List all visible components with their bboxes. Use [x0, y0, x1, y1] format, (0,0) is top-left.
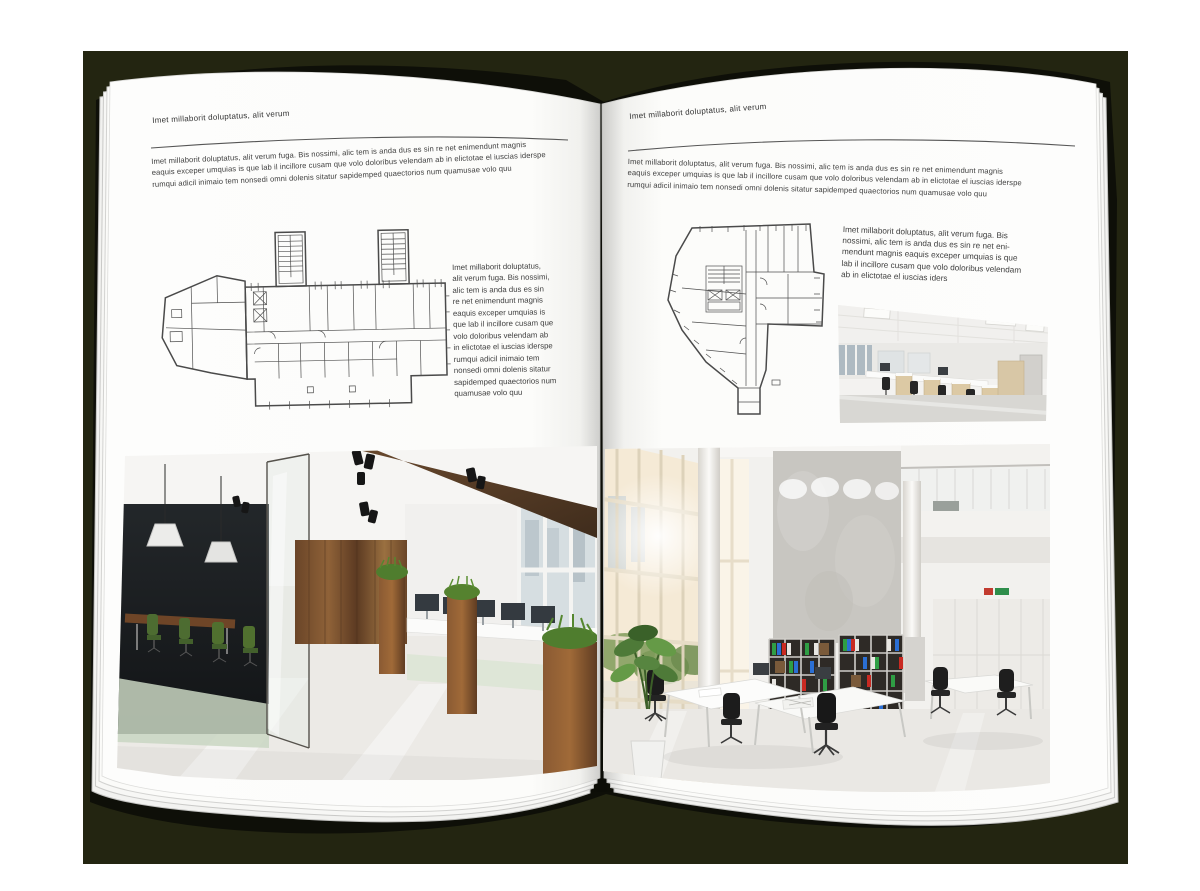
mezzanine — [901, 441, 1050, 563]
photo-office-atrium — [603, 441, 1050, 797]
concrete-wall — [773, 451, 901, 643]
corridor-door — [905, 637, 925, 701]
plant-pot — [631, 741, 665, 779]
left-page-caption: Imet millaborit doluptatus, alit verum f… — [452, 260, 588, 400]
photo-office-small — [838, 303, 1048, 425]
exit-sign — [995, 588, 1009, 595]
right-header-rule — [627, 134, 1077, 154]
photo-office-wood-glass — [117, 446, 597, 780]
cabinet-wall — [933, 588, 1050, 711]
sign-red — [984, 588, 993, 595]
vent — [933, 501, 959, 511]
right-page-caption: Imet millaborit doluptatus, alit verum f… — [841, 224, 1065, 289]
floorplan-right — [648, 218, 834, 420]
book-mockup: Imet millaborit doluptatus, alit verum I… — [0, 0, 1200, 891]
floorplan-left — [156, 226, 452, 416]
